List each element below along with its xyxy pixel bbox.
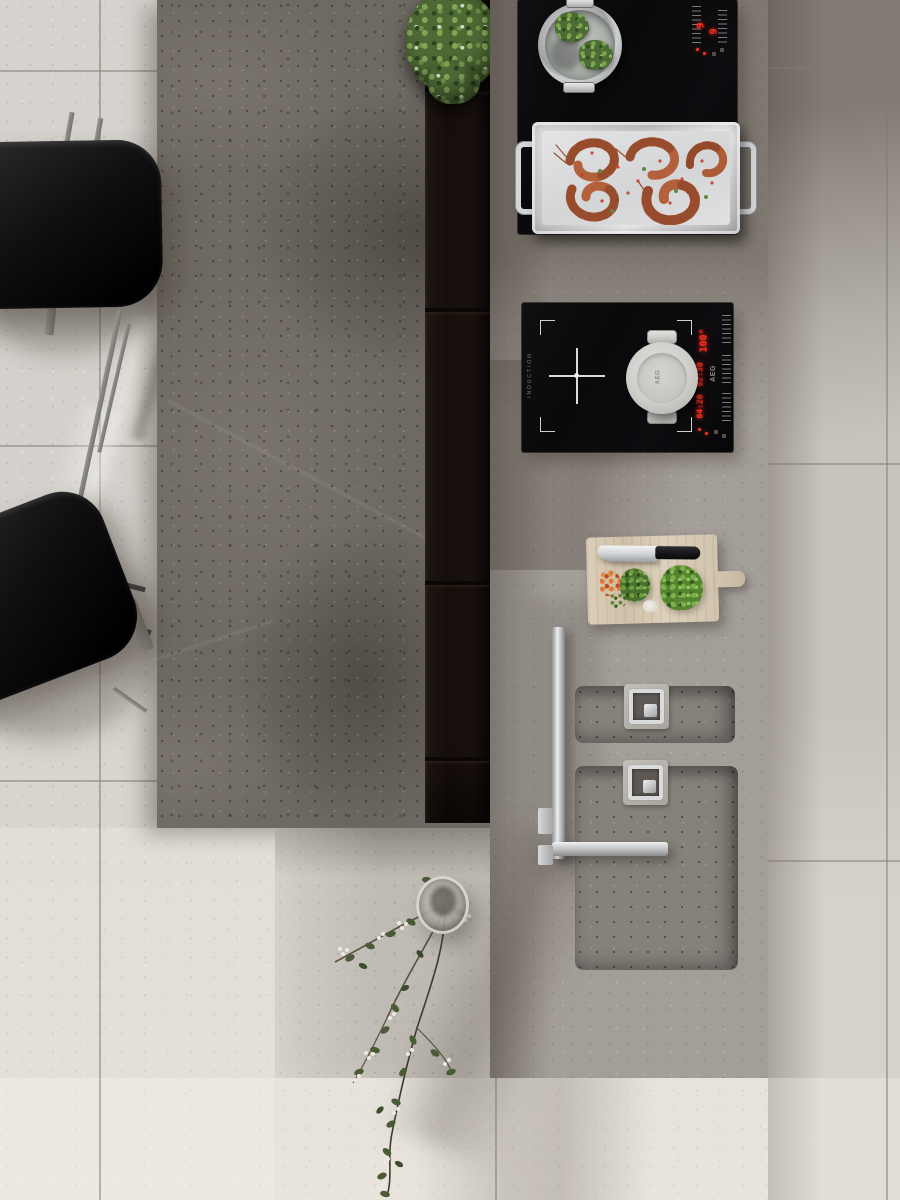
channel-divider [425,581,490,585]
herb-sprig [609,593,626,608]
burner-zone-corner [540,320,555,335]
broccoli-greens [579,40,613,70]
cutting-board [586,534,719,624]
faucet-spout[interactable] [552,627,565,859]
chef-knife-handle [655,546,700,559]
salt-pile [643,600,658,612]
control-scale-ticks [722,315,731,343]
induction-label: INDUCTION [527,345,533,405]
floor-bottomleft-highlight [0,828,275,1200]
tile-grout-h3 [0,780,157,782]
sink-drain [623,760,668,805]
pot-handle [566,0,594,8]
pot-water [545,10,615,80]
burner-zone-corner [540,417,555,432]
drain-cap [643,780,656,793]
cutting-board-handle [716,571,745,588]
sink-drain [624,684,669,729]
pot-handle [563,82,595,93]
indicator-dot [703,52,706,55]
chef-knife-blade [597,545,657,562]
potted-herb-plant-cluster [428,60,480,104]
control-scale-ticks [722,393,731,421]
power-level-display[interactable]: 9 [696,22,707,28]
steel-pot [538,3,622,87]
tray-body [532,122,740,234]
burner-zone-corner [677,320,692,335]
touch-control-button[interactable] [714,430,718,434]
floor-right-shadow [768,0,900,1200]
touch-control-button[interactable] [712,52,716,56]
channel-divider [425,308,490,312]
drain-ring [629,689,664,724]
aeg-pot: AEG [626,342,698,414]
tile-grout-h1 [0,70,157,72]
faucet-handle[interactable] [538,808,553,834]
channel-divider [425,757,490,761]
cooktop-brand-label: AEG [710,365,717,382]
indicator-dot [705,432,708,435]
tile-grout-h6 [768,860,900,862]
bar-chair-seat[interactable] [0,139,163,309]
drain-ring [628,765,663,800]
control-scale-ticks [722,355,731,383]
island-channel-trough [425,0,490,823]
drain-cap [644,704,657,717]
timer-display[interactable]: 04:20 [696,394,705,418]
tray-floor [542,131,730,225]
temperature-display[interactable]: 100° [699,328,710,352]
shrimp-illustration [542,131,730,225]
tile-grout-vertical-right [886,0,888,1200]
flower-branch [295,858,505,1200]
indicator-dot [696,48,699,51]
tile-grout-h4 [768,67,900,69]
tile-grout-h5 [768,463,900,465]
burner-zone-corner [677,417,692,432]
pot-lid: AEG [637,353,687,403]
power-level-display[interactable]: 9 [709,28,720,34]
faucet-arm[interactable] [552,842,668,856]
indicator-dot [698,428,701,431]
broccoli-greens [555,12,589,42]
kitchen-top-view: 9 9 [0,0,900,1200]
touch-control-button[interactable] [722,434,726,438]
vase-glass-reflection [430,886,456,916]
pot-lid-brand-label: AEG [655,370,661,385]
faucet-handle[interactable] [538,845,553,865]
glass-vase [416,876,469,934]
shrimp-tray [518,122,754,234]
burner-crosshair-center [574,373,579,378]
touch-control-button[interactable] [720,48,724,52]
